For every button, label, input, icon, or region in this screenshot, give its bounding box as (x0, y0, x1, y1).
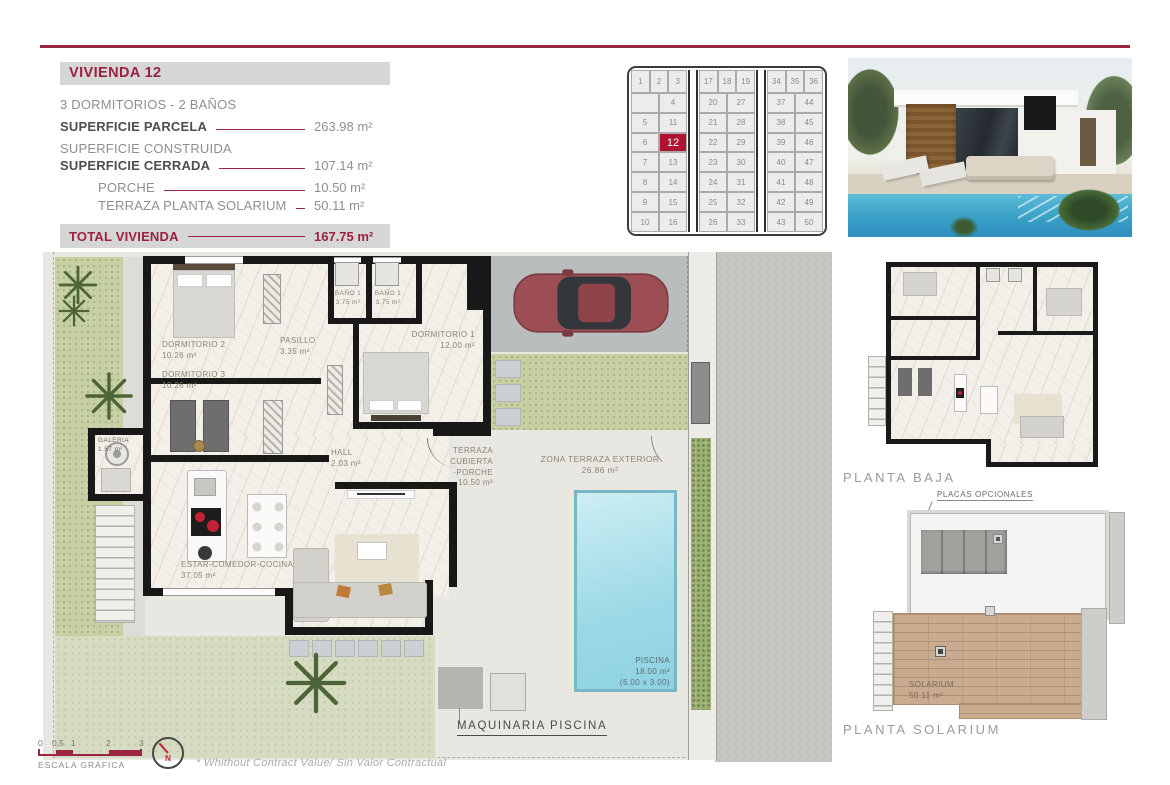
sofa-pillow (378, 583, 393, 596)
plot-cell: 33 (727, 212, 755, 232)
solarium-stairs (873, 611, 893, 711)
room-label-piscina: PISCINA18.00 m²(6.00 x 3.00) (600, 656, 670, 688)
mini-sofa (1020, 416, 1064, 438)
pedestrian-gate (691, 362, 710, 424)
car-top-view (511, 266, 671, 340)
plot-cell: 13 (659, 152, 687, 172)
mini-stairs (868, 356, 886, 426)
plot-cell: 34 (767, 70, 786, 93)
room-label-dormitorio1: DORMITORIO 112.00 m² (375, 330, 475, 352)
dining-table (247, 494, 287, 558)
plot-cell: 31 (727, 172, 755, 192)
hedge-right (691, 438, 711, 710)
mini-floor (988, 444, 1098, 464)
maquinaria-label: MAQUINARIA PISCINA (457, 720, 607, 736)
plot-cell: 8 (631, 172, 659, 192)
plot-cell: 43 (767, 212, 795, 232)
street (715, 252, 832, 762)
wardrobe (263, 400, 283, 454)
site-grid-road (688, 70, 698, 232)
scale-segment (56, 750, 73, 754)
mini-bed (903, 272, 937, 296)
plot-cell: 38 (767, 113, 795, 133)
brochure-page: VIVIENDA 12 3 DORMITORIOS - 2 BAÑOS SUPE… (0, 0, 1170, 785)
room-label-hall: HALL2.03 m² (331, 448, 361, 470)
wall-segment (88, 494, 150, 501)
leader-line (219, 168, 305, 169)
room-label-estar: ESTAR-COMEDOR-COCINA37.05 m² (181, 560, 293, 582)
plot-cell: 49 (795, 192, 823, 212)
plot-cell: 20 (699, 93, 727, 113)
bed-single (203, 400, 229, 452)
scale-bar: 0 0,5 1 2 3 ESCALA GRÁFICA (38, 738, 158, 770)
plot-cell: 32 (727, 192, 755, 212)
wardrobe (327, 365, 343, 415)
wall-segment (467, 256, 483, 310)
wall-segment (886, 439, 991, 444)
plot-cell: 35 (786, 70, 805, 93)
plot-cell: 45 (795, 113, 823, 133)
top-divider-rule (40, 45, 1130, 48)
stepping-stone (495, 408, 521, 426)
villa-wood-door (1080, 118, 1096, 166)
room-label-galeria: GALERIA1.57 m² (98, 437, 129, 455)
scale-tick: 0 (38, 738, 43, 748)
plot-cell: 21 (699, 113, 727, 133)
plot-cell: 30 (727, 152, 755, 172)
wall-segment (886, 262, 1098, 267)
wall-segment (433, 428, 491, 436)
scale-baseline (38, 754, 142, 756)
scale-tick: 1 (71, 738, 76, 748)
shower-tray (375, 262, 399, 286)
room-label-zona-terraza: ZONA TERRAZA EXTERIOR26.86 m² (525, 454, 675, 477)
plot-cell: 6 (631, 133, 659, 153)
wall-segment (986, 462, 1098, 467)
plot-cell: 5 (631, 113, 659, 133)
cooktop-burner (207, 520, 219, 532)
site-grid-block: 1718192027212822292330243125322633 (699, 70, 755, 232)
pool-equipment-box (490, 673, 526, 711)
mini-shower (986, 268, 1000, 282)
pillow (177, 274, 203, 287)
plot-cell: 19 (736, 70, 755, 93)
plot-cell: 40 (767, 152, 795, 172)
wall-segment (449, 482, 457, 587)
wall-segment (886, 356, 976, 360)
wall-segment (886, 262, 891, 444)
mini-bed (1046, 288, 1082, 316)
palm-tree-left (848, 58, 910, 172)
page-title: VIVIENDA 12 (60, 62, 390, 85)
exterior-stairs (95, 505, 135, 623)
plot-cell: 44 (795, 93, 823, 113)
planta-solarium-thumbnail: PLACAS OPCIONALES SOLARIUM50.11 m² (843, 488, 1143, 738)
planta-baja-caption: PLANTA BAJA (843, 470, 956, 485)
wall-segment (328, 318, 422, 324)
plot-cell: 1 (631, 70, 650, 93)
scale-end-tick (140, 749, 142, 756)
plot-cell: 18 (718, 70, 737, 93)
scale-caption: ESCALA GRÁFICA (38, 760, 125, 770)
plot-cell: 25 (699, 192, 727, 212)
room-label-bano: BAÑO 13.75 m² (371, 290, 405, 308)
plot-cell: 16 (659, 212, 687, 232)
leader-line (188, 236, 305, 237)
wall-segment (285, 627, 433, 635)
planta-solarium-caption: PLANTA SOLARIUM (843, 722, 1001, 737)
scale-tick: 3 (139, 738, 144, 748)
mini-burner (958, 391, 962, 395)
wall-segment (353, 324, 359, 428)
plot-cell: 42 (767, 192, 795, 212)
plot-cell: 9 (631, 192, 659, 212)
wall-segment (143, 455, 329, 462)
plot-cell: 29 (727, 133, 755, 153)
main-floor-plan: DORMITORIO 210.26 m² DORMITORIO 310.26 m… (35, 252, 832, 762)
stepping-stone (495, 360, 521, 378)
palm-plant (83, 370, 135, 422)
row-superficie-parcela: SUPERFICIE PARCELA 263.98 m² (60, 119, 390, 134)
leader-line (216, 129, 305, 130)
room-label-pasillo: PASILLO3.35 m² (280, 336, 316, 358)
palm-plant (57, 294, 91, 328)
plot-cell-highlighted: 12 (659, 133, 687, 153)
plot-cell: 37 (767, 93, 795, 113)
plot-cell: 26 (699, 212, 727, 232)
north-needle (159, 743, 169, 754)
plot-cell: 36 (804, 70, 823, 93)
plot-cell: 28 (727, 113, 755, 133)
kitchen-sink (194, 478, 216, 496)
site-plan-grid: 1234511612713814915101617181920272128222… (627, 66, 827, 236)
plot-cell: 17 (699, 70, 718, 93)
outdoor-sofa-set (966, 156, 1054, 180)
plot-cell: 2 (650, 70, 669, 93)
wall-segment (1033, 262, 1037, 335)
plot-cell: 10 (631, 212, 659, 232)
disclaimer-text: * Whithout Contract Value/ Sin Valor Con… (196, 757, 446, 769)
plot-cell: 11 (659, 113, 687, 133)
mini-shower (1008, 268, 1022, 282)
planta-baja-thumbnail (868, 256, 1132, 470)
mini-bed (898, 368, 912, 396)
placas-label: PLACAS OPCIONALES (937, 490, 1033, 501)
window (185, 256, 243, 264)
pillow (206, 274, 232, 287)
wall-segment (1093, 262, 1098, 467)
solarium-deck-step (959, 703, 1083, 719)
room-label-porche: TERRAZA CUBIERTA-PORCHE10.50 m² (425, 446, 493, 489)
garden-strip-front (491, 354, 696, 430)
leader-line (296, 208, 305, 209)
wall-segment (88, 428, 95, 501)
wall-segment (416, 256, 422, 324)
info-panel: VIVIENDA 12 3 DORMITORIOS - 2 BAÑOS SUPE… (60, 62, 390, 273)
bed-bench (371, 415, 421, 421)
deck-vent-dot (938, 649, 943, 654)
plot-cell: 24 (699, 172, 727, 192)
cooktop-burner (195, 512, 205, 522)
palm-plant (283, 650, 349, 716)
laundry-counter (101, 468, 131, 492)
mini-dining-table (980, 386, 998, 414)
plot-cell: 22 (699, 133, 727, 153)
wall-segment (143, 256, 151, 435)
wall-segment (998, 331, 1098, 335)
tv-screen (357, 493, 405, 495)
plot-cell: 4 (659, 93, 687, 113)
plot-cell: 46 (795, 133, 823, 153)
row-superficie-construida: SUPERFICIE CONSTRUIDA (60, 141, 390, 156)
plot-cell: 47 (795, 152, 823, 172)
row-superficie-cerrada: SUPERFICIE CERRADA 107.14 m² (60, 158, 390, 173)
wall-segment (88, 428, 150, 435)
north-arrow: N (152, 737, 184, 769)
coffee-table (357, 542, 387, 560)
plot-cell: 3 (668, 70, 687, 93)
sofa-pillow (336, 585, 351, 598)
scale-tick: 0,5 (52, 738, 64, 748)
plot-cell: 27 (727, 93, 755, 113)
row-porche: PORCHE 10.50 m² (60, 180, 390, 195)
scale-tick: 2 (106, 738, 111, 748)
scale-end-tick (38, 749, 40, 756)
plot-cell: 41 (767, 172, 795, 192)
row-terraza-solarium: TERRAZA PLANTA SOLARIUM 50.11 m² (60, 198, 390, 213)
site-grid-block: 12345116127138149151016 (631, 70, 687, 232)
wall-segment (483, 256, 491, 436)
pool-equipment-box (438, 667, 483, 709)
villa-photo (848, 58, 1132, 237)
roof-vent (985, 606, 995, 616)
villa-dark-volume (1024, 96, 1056, 130)
wall-segment (886, 316, 976, 320)
wall-segment (976, 262, 980, 360)
pillow (397, 400, 422, 411)
row-total-vivienda: TOTAL VIVIENDA 167.75 m² (60, 224, 390, 248)
room-label-dormitorio3: DORMITORIO 310.26 m² (162, 370, 225, 392)
mini-bed (918, 368, 932, 396)
plot-cell (631, 93, 659, 113)
plot-cell: 48 (795, 172, 823, 192)
plot-cell: 39 (767, 133, 795, 153)
bedrooms-baths-text: 3 DORMITORIOS - 2 BAÑOS (60, 97, 236, 112)
plot-cell: 15 (659, 192, 687, 212)
plot-cell: 14 (659, 172, 687, 192)
plot-cell: 7 (631, 152, 659, 172)
scale-segment (109, 750, 142, 754)
stepping-stone (495, 384, 521, 402)
leader-line (164, 190, 305, 191)
stool (198, 546, 212, 560)
room-label-bano: BAÑO 13.75 m² (331, 290, 365, 308)
nightstand (193, 440, 205, 452)
plot-cell: 23 (699, 152, 727, 172)
plot-cell: 50 (795, 212, 823, 232)
north-letter: N (154, 754, 182, 763)
stepping-stone (381, 640, 401, 657)
deck-side-column (1081, 608, 1107, 720)
roof-vent-dot (996, 537, 1000, 541)
site-grid-road (756, 70, 766, 232)
foreground-plant (1044, 180, 1132, 237)
shower-tray (335, 262, 359, 286)
stepping-stone (404, 640, 424, 657)
sliding-door (163, 588, 275, 596)
sofa (293, 582, 427, 618)
pillow (369, 400, 394, 411)
site-grid-block: 3435363744384539464047414842494350 (767, 70, 823, 232)
stepping-stone (358, 640, 378, 657)
roof-side-strip (1109, 512, 1125, 624)
foreground-plant (944, 212, 984, 237)
room-label-solarium: SOLARIUM50.11 m² (909, 680, 954, 702)
wall-segment (353, 422, 491, 429)
wardrobe (263, 274, 281, 324)
room-label-dormitorio2: DORMITORIO 210.26 m² (162, 340, 225, 362)
